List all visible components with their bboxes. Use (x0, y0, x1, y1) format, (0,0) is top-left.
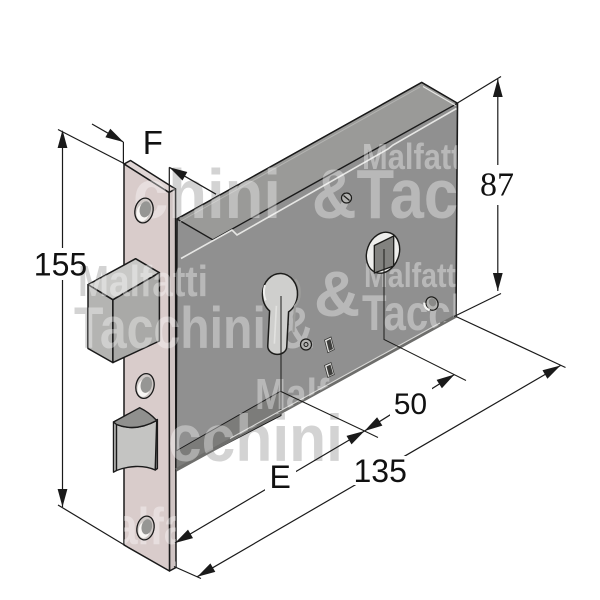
svg-text:87: 87 (480, 167, 514, 204)
svg-text:155: 155 (34, 247, 87, 283)
svg-text:50: 50 (394, 388, 427, 421)
svg-text:Malfatti: Malfatti (362, 136, 470, 177)
svg-text:&: & (314, 258, 360, 330)
svg-text:135: 135 (354, 453, 407, 489)
svg-text:E: E (270, 459, 291, 495)
svg-text:F: F (143, 124, 163, 161)
